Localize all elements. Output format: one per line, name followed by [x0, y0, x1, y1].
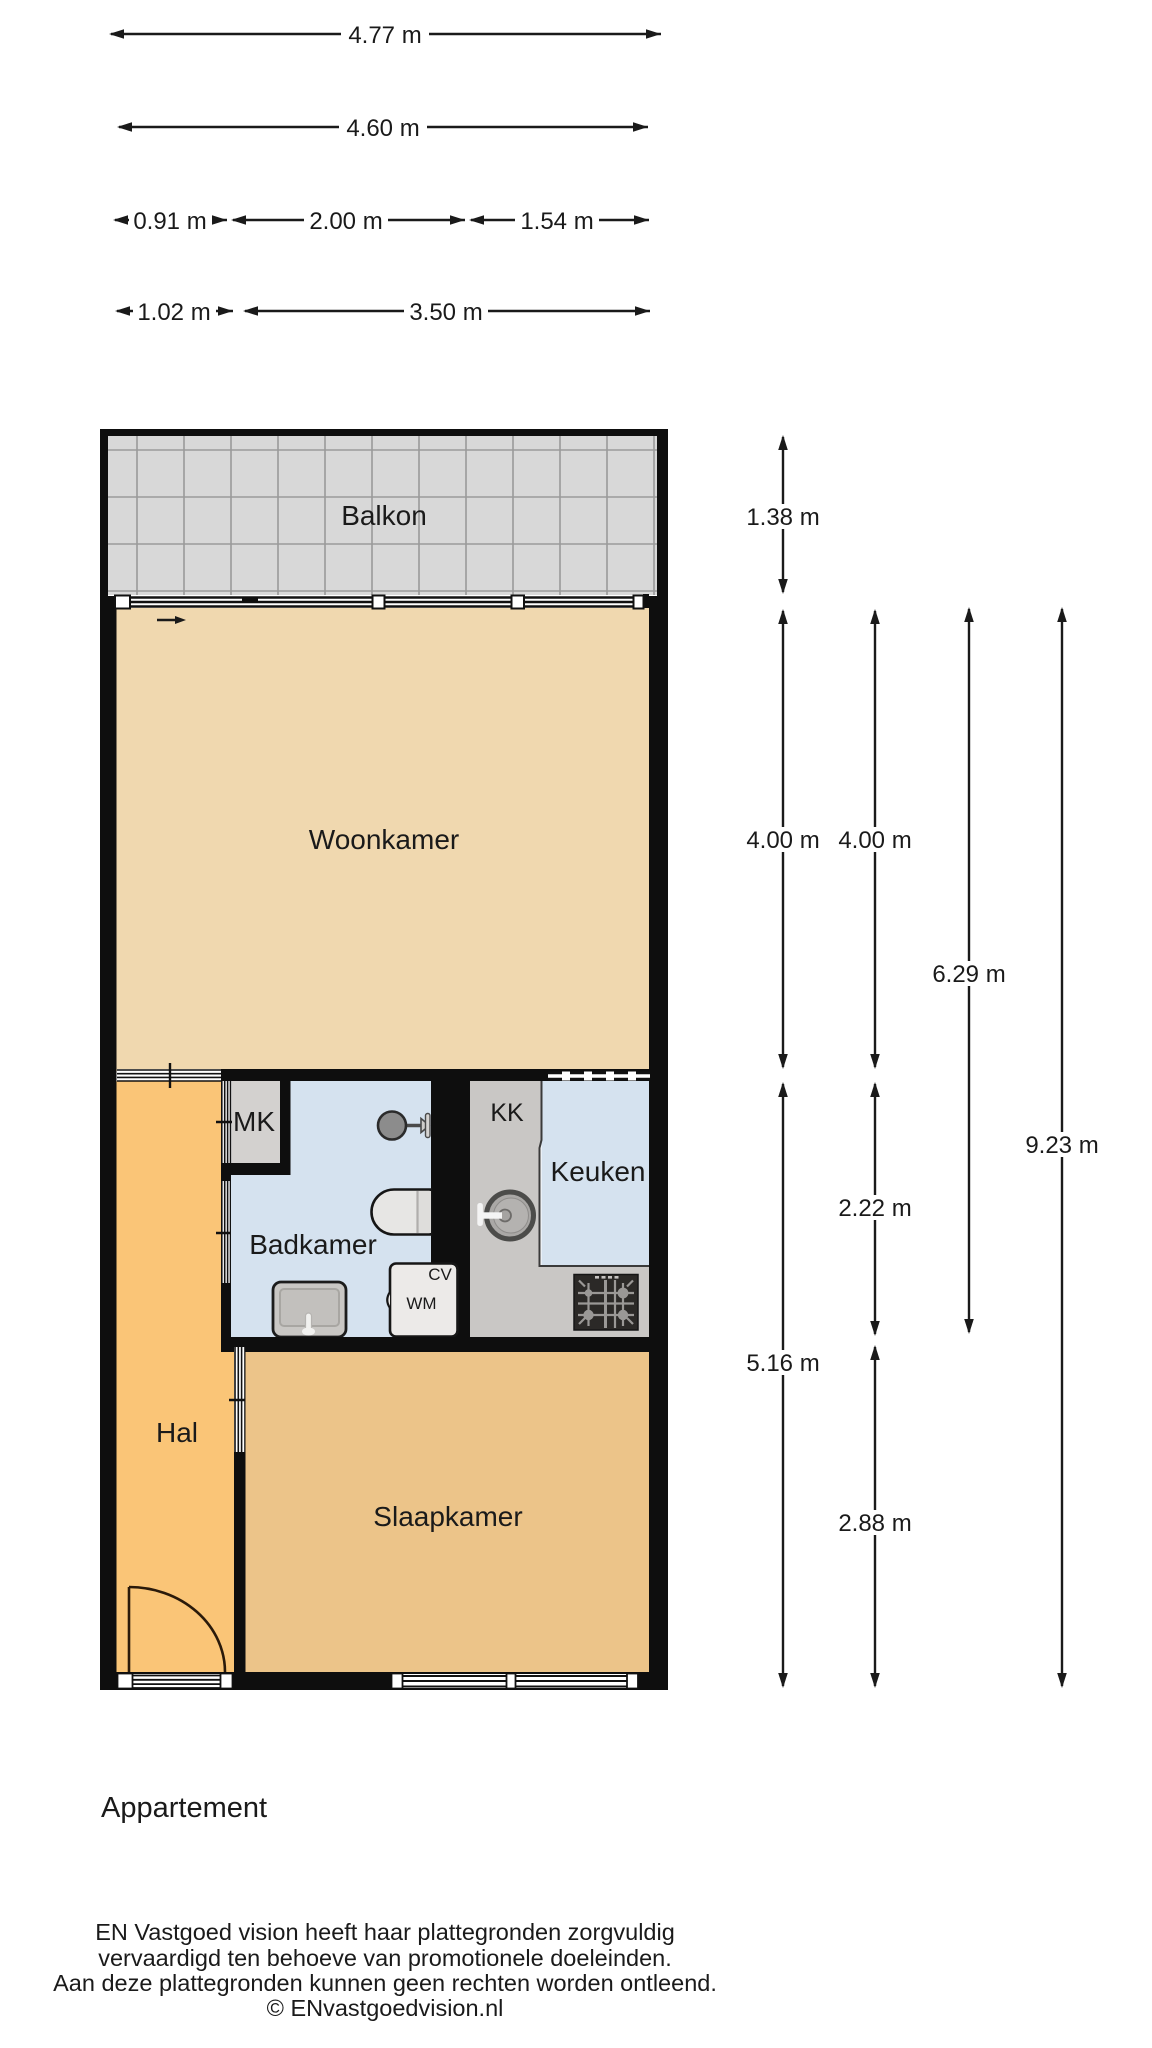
svg-text:Balkon: Balkon: [341, 500, 427, 531]
svg-text:EN Vastgoed vision heeft haar: EN Vastgoed vision heeft haar plattegron…: [95, 1919, 675, 1945]
svg-text:6.29 m: 6.29 m: [932, 961, 1005, 988]
svg-text:WM: WM: [406, 1294, 436, 1313]
svg-text:MK: MK: [233, 1106, 275, 1137]
svg-text:9.23 m: 9.23 m: [1025, 1132, 1098, 1159]
svg-text:vervaardigd ten behoeve van pr: vervaardigd ten behoeve van promotionele…: [98, 1945, 672, 1971]
svg-text:Appartement: Appartement: [101, 1792, 267, 1824]
svg-text:1.54 m: 1.54 m: [520, 208, 593, 235]
svg-text:2.88 m: 2.88 m: [838, 1510, 911, 1537]
svg-text:1.02 m: 1.02 m: [137, 299, 210, 326]
svg-text:1.38 m: 1.38 m: [746, 504, 819, 531]
svg-text:3.50 m: 3.50 m: [409, 299, 482, 326]
svg-text:Badkamer: Badkamer: [249, 1229, 377, 1260]
svg-text:KK: KK: [490, 1099, 524, 1127]
svg-text:2.00 m: 2.00 m: [309, 208, 382, 235]
svg-text:4.60 m: 4.60 m: [346, 115, 419, 142]
svg-text:CV: CV: [428, 1265, 452, 1284]
svg-text:Aan deze plattegronden kunnen: Aan deze plattegronden kunnen geen recht…: [53, 1970, 717, 1996]
svg-text:4.77 m: 4.77 m: [348, 22, 421, 49]
svg-text:2.22 m: 2.22 m: [838, 1195, 911, 1222]
svg-text:0.91 m: 0.91 m: [133, 208, 206, 235]
svg-text:Keuken: Keuken: [551, 1156, 646, 1187]
svg-text:Woonkamer: Woonkamer: [309, 824, 459, 855]
svg-text:4.00 m: 4.00 m: [838, 827, 911, 854]
svg-text:© ENvastgoedvision.nl: © ENvastgoedvision.nl: [267, 1995, 504, 2021]
svg-text:Slaapkamer: Slaapkamer: [373, 1501, 522, 1532]
svg-text:Hal: Hal: [156, 1417, 198, 1448]
svg-text:5.16 m: 5.16 m: [746, 1350, 819, 1377]
svg-text:4.00 m: 4.00 m: [746, 827, 819, 854]
